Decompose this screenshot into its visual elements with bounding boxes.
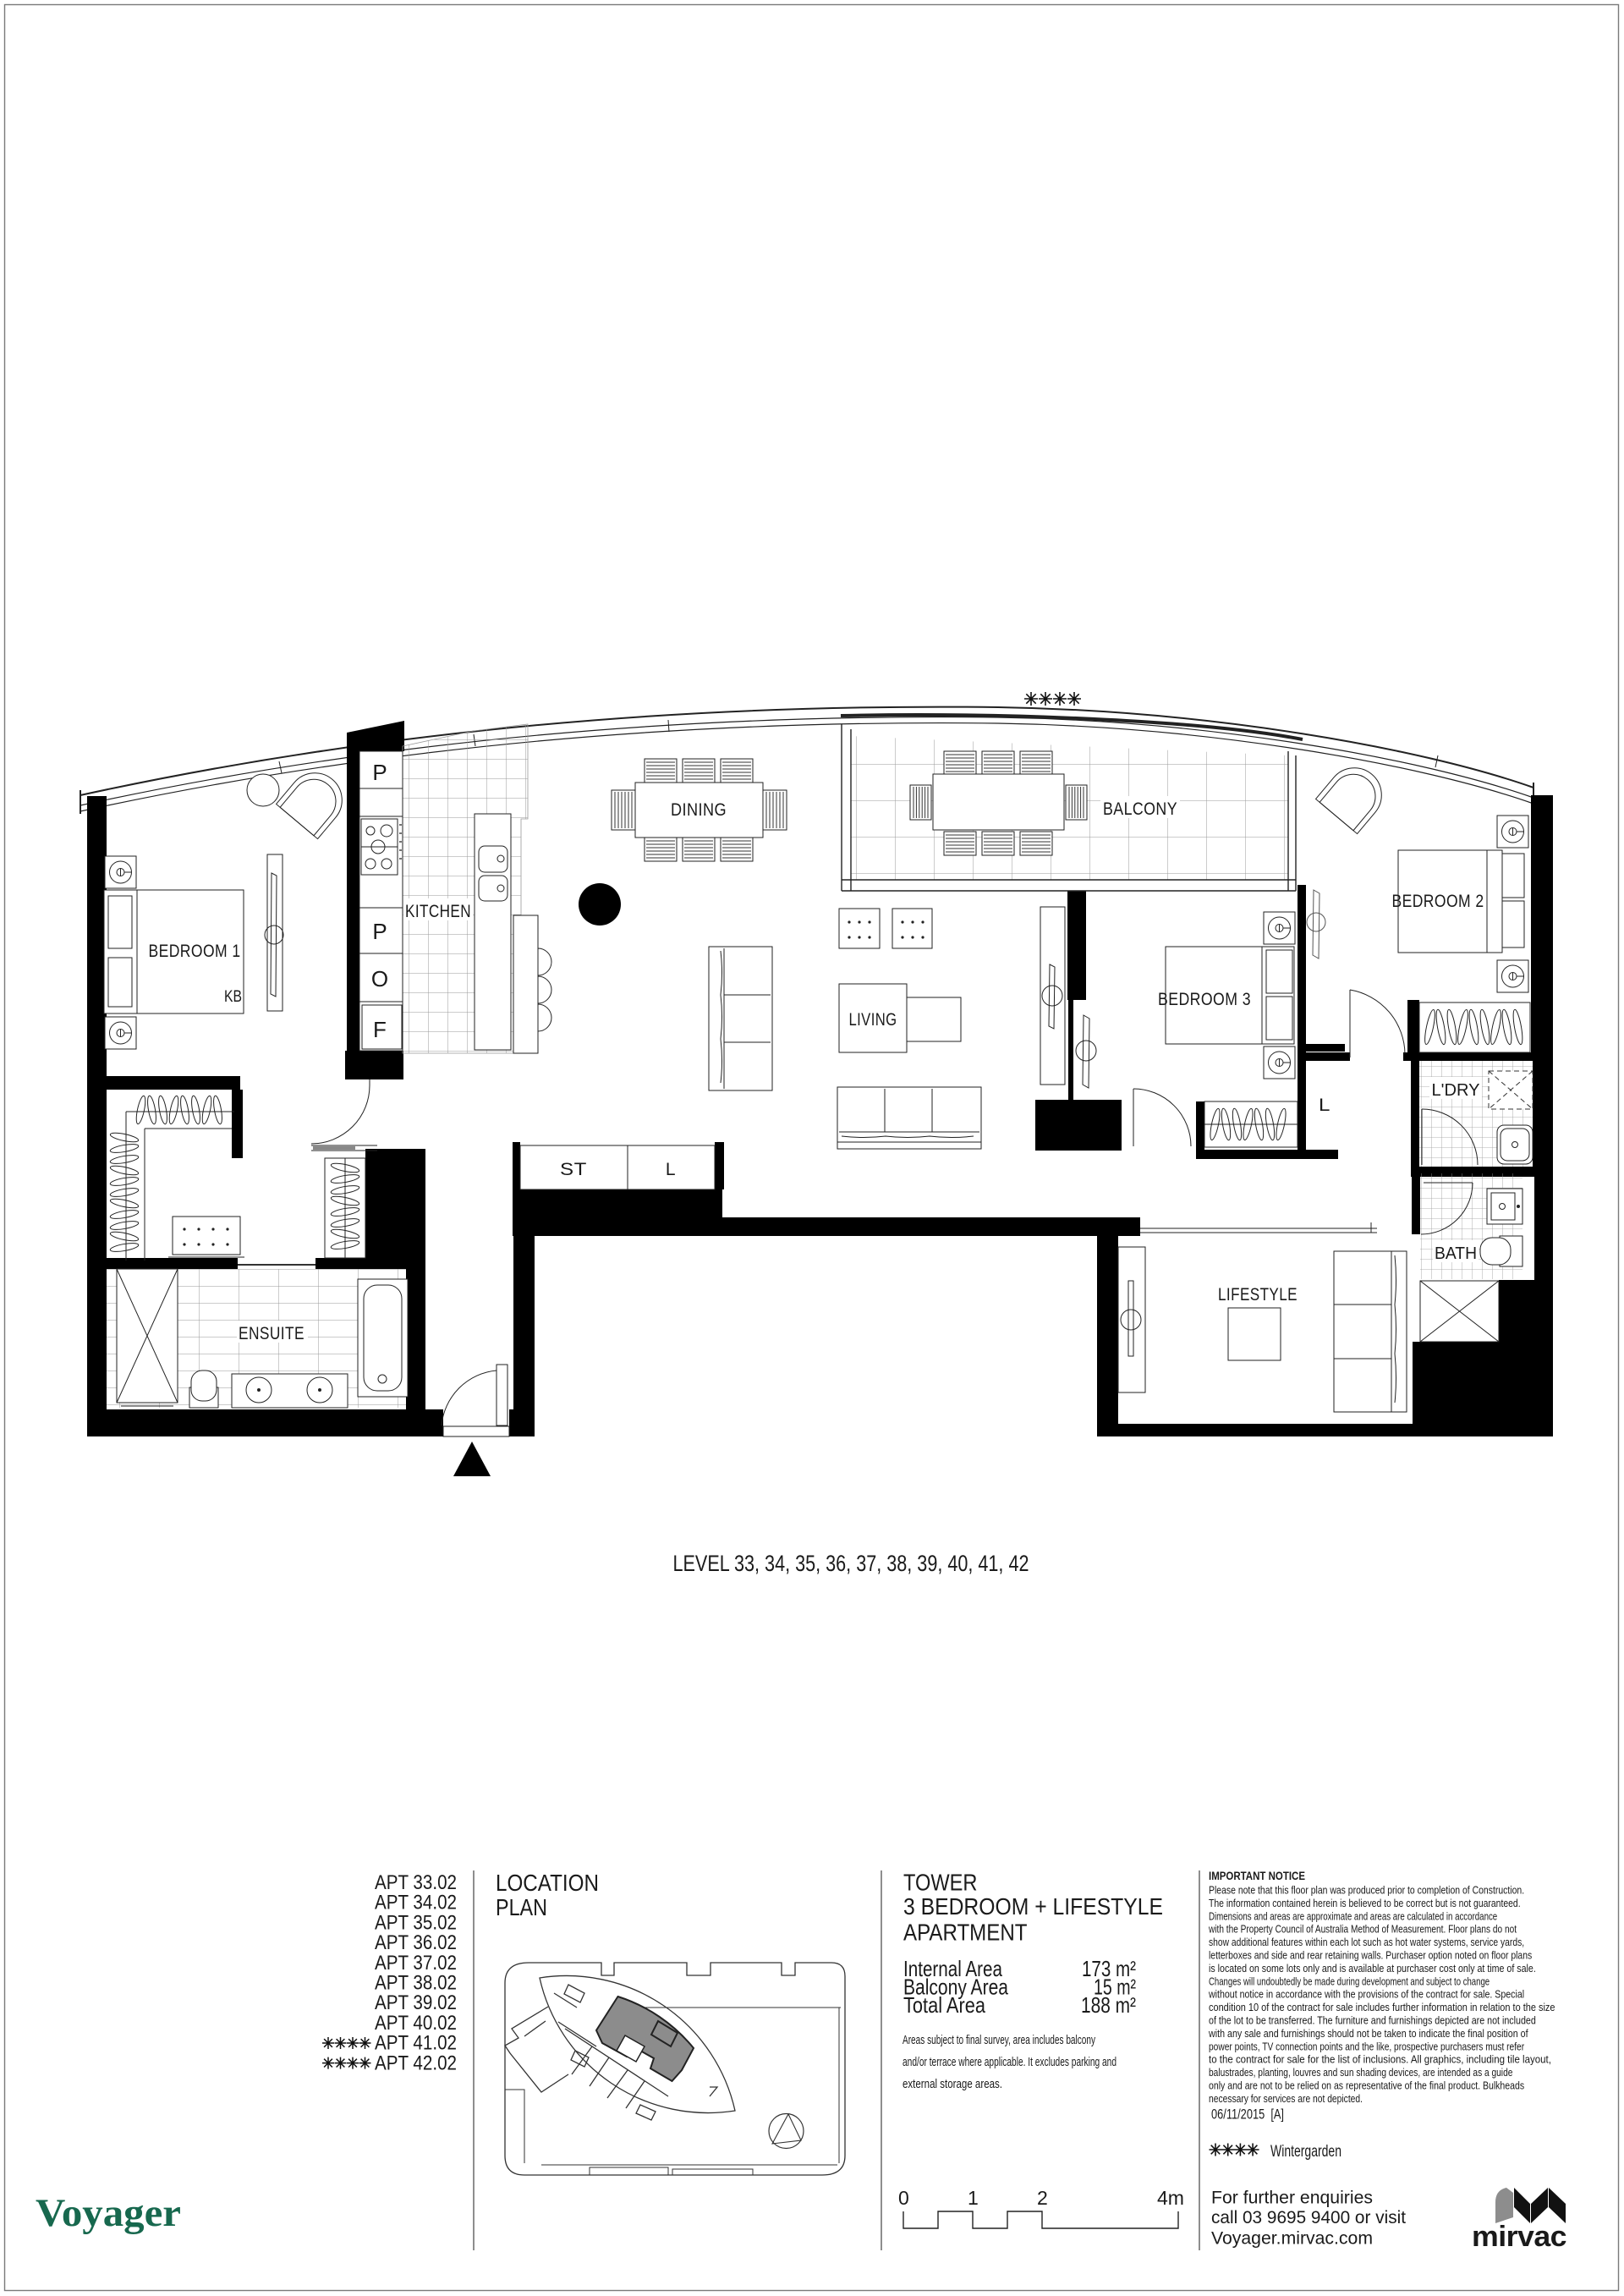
svg-text:letterboxes and side and rear: letterboxes and side and rear retaining … [1209,1949,1533,1962]
svg-text:P: P [372,760,387,785]
svg-text:Wintergarden: Wintergarden [1270,2142,1341,2161]
svg-text:The information contained here: The information contained herein is beli… [1209,1897,1521,1909]
svg-text:O: O [371,966,388,991]
svg-text:PLAN: PLAN [496,1894,547,1920]
svg-text:IMPORTANT NOTICE: IMPORTANT NOTICE [1209,1870,1305,1882]
svg-text:ENSUITE: ENSUITE [239,1324,304,1343]
svg-text:06/11/2015 [A]: 06/11/2015 [A] [1211,2107,1284,2123]
svg-text:L: L [1319,1096,1330,1115]
svg-text:only and are not to be relied: only and are not to be relied on as repr… [1209,2079,1524,2092]
svg-text:condition 10 of the contract f: condition 10 of the contract for sale in… [1209,2001,1555,2013]
svg-text:BATH: BATH [1435,1244,1477,1263]
svg-text:mirvac: mirvac [1472,2221,1566,2253]
svg-text:3 BEDROOM + LIFESTYLE: 3 BEDROOM + LIFESTYLE [903,1893,1163,1920]
svg-text:Changes will undoubtedly be ma: Changes will undoubtedly be made during … [1209,1975,1490,1987]
svg-text:BALCONY: BALCONY [1103,799,1177,819]
svg-text:LIVING: LIVING [849,1010,897,1030]
svg-text:balustrades, planting, louvres: balustrades, planting, louvres and sun s… [1209,2066,1512,2079]
svg-text:call 03 9695 9400 or visit: call 03 9695 9400 or visit [1211,2207,1406,2227]
svg-text:LIFESTYLE: LIFESTYLE [1218,1285,1298,1305]
svg-text:4m: 4m [1157,2187,1184,2209]
svg-text:L'DRY: L'DRY [1432,1081,1480,1100]
svg-text:2: 2 [1037,2187,1048,2209]
svg-text:to the contract for sale for t: to the contract for sale for the list of… [1209,2053,1551,2066]
svg-text:L: L [666,1160,676,1179]
svg-text:Voyager.mirvac.com: Voyager.mirvac.com [1211,2227,1373,2248]
svg-text:188 m²: 188 m² [1081,1992,1136,2018]
svg-text:KITCHEN: KITCHEN [405,902,471,921]
svg-text:APARTMENT: APARTMENT [903,1920,1028,1946]
svg-text:BEDROOM 1: BEDROOM 1 [149,942,241,961]
svg-text:BEDROOM 3: BEDROOM 3 [1158,990,1251,1009]
svg-text:without notice in accordance w: without notice in accordance with the pr… [1208,1988,1524,2001]
svg-text:DINING: DINING [671,800,727,820]
svg-text:For further enquiries: For further enquiries [1211,2188,1373,2208]
svg-text:TOWER: TOWER [903,1870,978,1896]
svg-text:and/or terrace where applicabl: and/or terrace where applicable. It excl… [903,2055,1116,2069]
svg-text:APT 42.02: APT 42.02 [375,2052,457,2074]
svg-text:is located on some lots only a: is located on some lots only and is avai… [1209,1962,1536,1975]
svg-text:external storage areas.: external storage areas. [903,2077,1002,2091]
svg-text:with the Property Council of A: with the Property Council of Australia M… [1208,1923,1517,1936]
svg-text:KB: KB [224,988,242,1006]
svg-text:Total Area: Total Area [903,1992,985,2018]
svg-text:LOCATION: LOCATION [496,1870,599,1896]
svg-text:P: P [372,919,387,944]
svg-text:Areas subject to final survey,: Areas subject to final survey, area incl… [903,2033,1095,2047]
svg-text:Please note that this floor pl: Please note that this floor plan was pro… [1209,1884,1524,1897]
svg-text:ST: ST [560,1160,587,1179]
svg-text:1: 1 [968,2187,979,2209]
svg-text:F: F [373,1017,387,1042]
svg-text:necessary for services are not: necessary for services are not depicted. [1209,2092,1363,2105]
svg-text:0: 0 [898,2187,909,2209]
svg-text:LEVEL 33, 34, 35, 36, 37, 38,: LEVEL 33, 34, 35, 36, 37, 38, 39, 40, 41… [673,1551,1029,1576]
svg-text:BEDROOM 2: BEDROOM 2 [1392,892,1484,911]
svg-text:Dimensions and areas are appro: Dimensions and areas are approximate and… [1209,1909,1497,1922]
svg-text:power points, TV connection po: power points, TV connection points and t… [1209,2040,1525,2052]
svg-text:with any sale and furnishings: with any sale and furnishings should not… [1208,2027,1528,2040]
svg-text:show additional features withi: show additional features within each lot… [1209,1936,1524,1948]
svg-text:of the lot to be transferred.: of the lot to be transferred. The furnit… [1209,2014,1536,2027]
svg-text:Voyager: Voyager [36,2191,181,2235]
